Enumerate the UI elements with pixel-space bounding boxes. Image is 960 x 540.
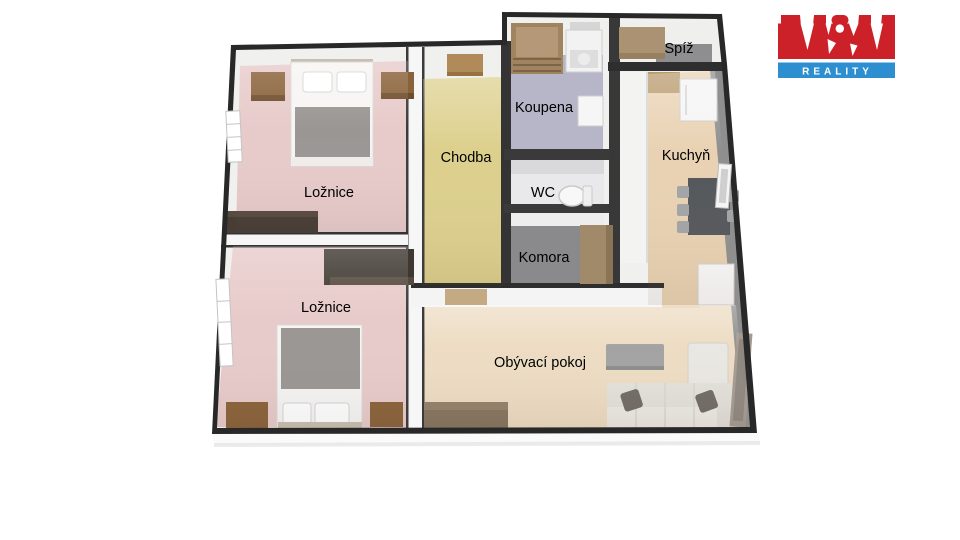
svg-text:Obývací pokoj: Obývací pokoj — [494, 355, 586, 371]
svg-text:Komora: Komora — [519, 250, 571, 266]
svg-text:Spíž: Spíž — [664, 41, 693, 57]
svg-text:Koupena: Koupena — [515, 100, 574, 116]
svg-text:WC: WC — [531, 185, 555, 201]
svg-text:Ložnice: Ložnice — [301, 300, 351, 316]
svg-text:REALITY: REALITY — [802, 67, 873, 78]
svg-text:Kuchyň: Kuchyň — [662, 148, 710, 164]
svg-text:Ložnice: Ložnice — [304, 185, 354, 201]
svg-text:Chodba: Chodba — [441, 150, 493, 166]
